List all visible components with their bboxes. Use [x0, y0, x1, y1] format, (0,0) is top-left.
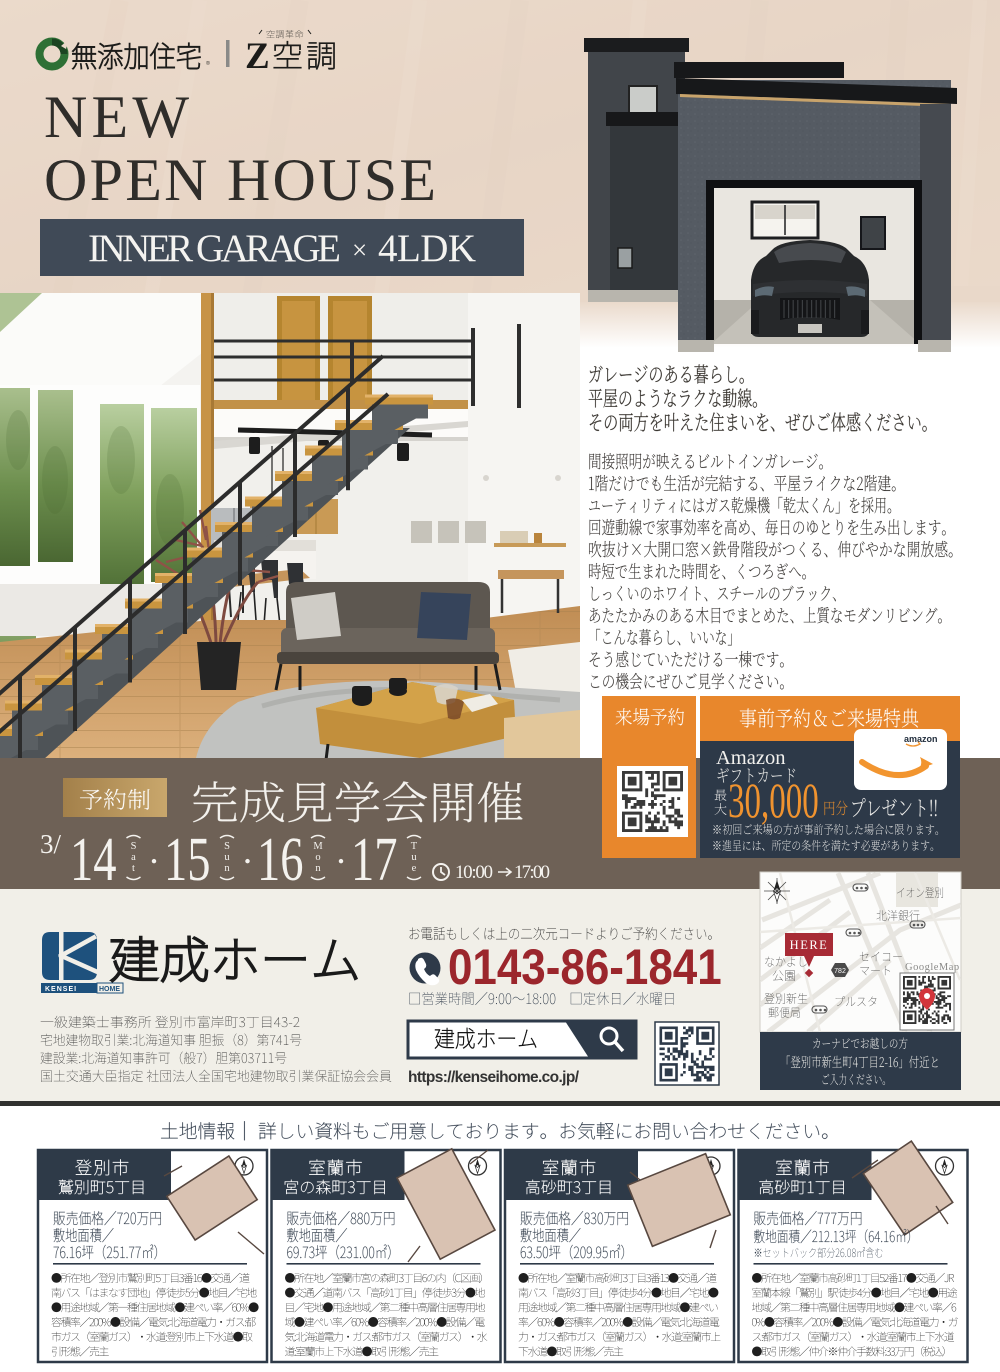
- svg-text:782: 782: [834, 968, 846, 975]
- svg-text:e: e: [412, 863, 417, 874]
- svg-text:t: t: [132, 863, 135, 874]
- svg-text:NEW: NEW: [44, 84, 189, 150]
- svg-text:INNER GARAGE: INNER GARAGE: [88, 227, 341, 270]
- svg-text:17: 17: [351, 825, 397, 894]
- svg-text:HOME: HOME: [99, 986, 120, 993]
- svg-text:n: n: [315, 863, 321, 874]
- svg-text:0143-86-1841: 0143-86-1841: [448, 938, 722, 994]
- svg-text:S: S: [224, 841, 230, 852]
- svg-text:30,000: 30,000: [728, 773, 819, 828]
- svg-text:3/: 3/: [40, 829, 62, 859]
- svg-text:10:00: 10:00: [455, 862, 493, 883]
- svg-text:T: T: [411, 841, 418, 852]
- svg-text:o: o: [315, 852, 320, 863]
- svg-text:Z: Z: [245, 36, 270, 77]
- svg-text:GoogleMap: GoogleMap: [905, 962, 960, 973]
- svg-text:a: a: [131, 852, 136, 863]
- svg-text:17:00: 17:00: [514, 862, 550, 883]
- svg-text:15: 15: [164, 825, 210, 894]
- svg-text:S: S: [131, 841, 137, 852]
- svg-text:u: u: [224, 852, 230, 863]
- svg-text:OPEN HOUSE: OPEN HOUSE: [44, 147, 436, 213]
- svg-text:Amazon: Amazon: [716, 747, 785, 769]
- svg-text:14: 14: [70, 825, 116, 894]
- svg-text:amazon: amazon: [904, 734, 938, 744]
- svg-text:M: M: [313, 841, 323, 852]
- svg-text:KENSEI: KENSEI: [45, 986, 77, 993]
- svg-text:n: n: [224, 863, 230, 874]
- svg-text:u: u: [411, 852, 417, 863]
- svg-text:HERE: HERE: [790, 938, 829, 952]
- svg-text:https://kenseihome.co.jp/: https://kenseihome.co.jp/: [408, 1069, 580, 1086]
- svg-text:×: ×: [352, 235, 367, 265]
- svg-text:16: 16: [257, 825, 303, 894]
- svg-text:4LDK: 4LDK: [378, 227, 476, 270]
